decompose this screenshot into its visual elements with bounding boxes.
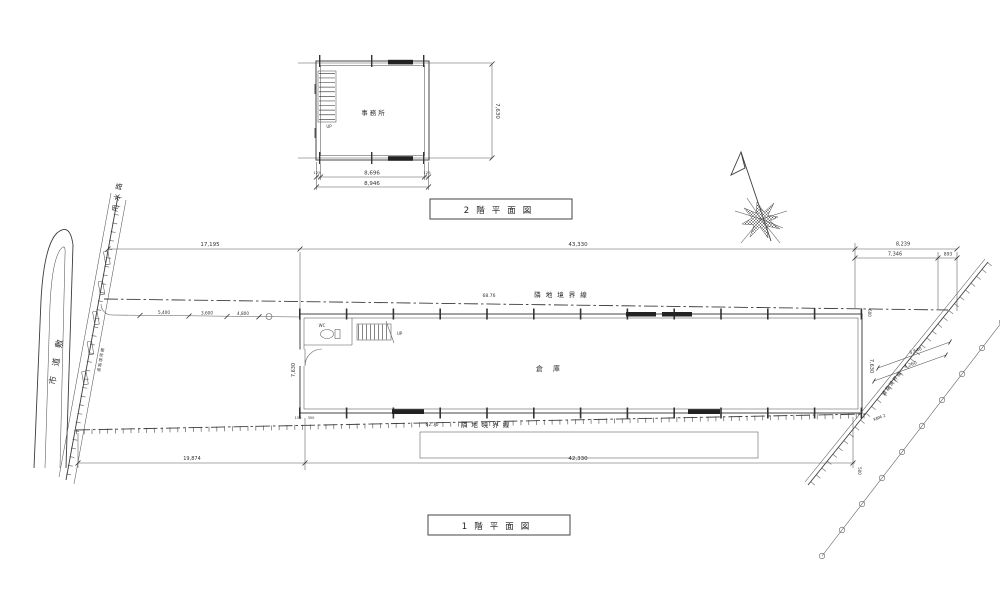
paper-background	[0, 0, 1000, 610]
dim-fence-4800: 4,800	[237, 311, 249, 316]
drawing-sheet: UP 事務所 7,630 125 8,696 125 8,946 2階平面図	[0, 0, 1000, 610]
dim-7346: 7,346	[888, 252, 902, 258]
dim-19874: 19,874	[183, 456, 201, 462]
dim-42330: 42,330	[568, 456, 588, 462]
opening-bottom	[388, 156, 413, 161]
boundary-bottom-label: 隣地境界線	[461, 420, 514, 429]
shutter-opening	[626, 312, 656, 317]
dim-350: 350	[308, 416, 316, 420]
shutter-opening	[688, 409, 720, 414]
dim-fence-3600: 3,600	[201, 311, 213, 316]
dim-1f-depth-left: 7,630	[291, 363, 297, 377]
dim-150: 150	[295, 416, 303, 420]
stair-up-label-1f: UP	[397, 331, 403, 336]
title-1f-label: 1階平面図	[462, 521, 536, 532]
dim-8239: 8,239	[896, 242, 910, 248]
boundary-bottom-length: 62.70	[426, 422, 439, 428]
room-label-1f: 倉庫	[536, 364, 570, 373]
boundary-top-label: 隣地境界線	[534, 290, 592, 299]
shutter-opening	[662, 312, 692, 317]
dim-893: 893	[944, 252, 953, 258]
dim-2f-depth: 7,630	[494, 103, 500, 119]
dim-17195: 17,195	[200, 242, 220, 248]
room-label-2f: 事務所	[361, 108, 387, 117]
dim-2f-total: 8,946	[364, 181, 380, 187]
shutter-opening	[392, 409, 424, 414]
stair-up-label: UP	[326, 124, 332, 129]
boundary-top-length: 68.76	[483, 293, 496, 299]
dim-1f-depth-right: 7,630	[868, 359, 874, 373]
dim-2f-end2: 125	[423, 170, 431, 175]
dim-600: 600	[867, 309, 872, 317]
dim-43330: 43,330	[568, 242, 588, 248]
dim-2f-width: 8,696	[364, 171, 380, 177]
dim-2f-end1: 125	[313, 170, 321, 175]
opening-top	[388, 60, 413, 65]
title-2f-label: 2階平面図	[464, 205, 538, 216]
wc-label: WC	[319, 323, 326, 328]
site-plan-drawing: UP 事務所 7,630 125 8,696 125 8,946 2階平面図	[0, 0, 1000, 610]
dim-fence-5400: 5,400	[158, 310, 170, 315]
dim-500: 500	[857, 467, 862, 475]
